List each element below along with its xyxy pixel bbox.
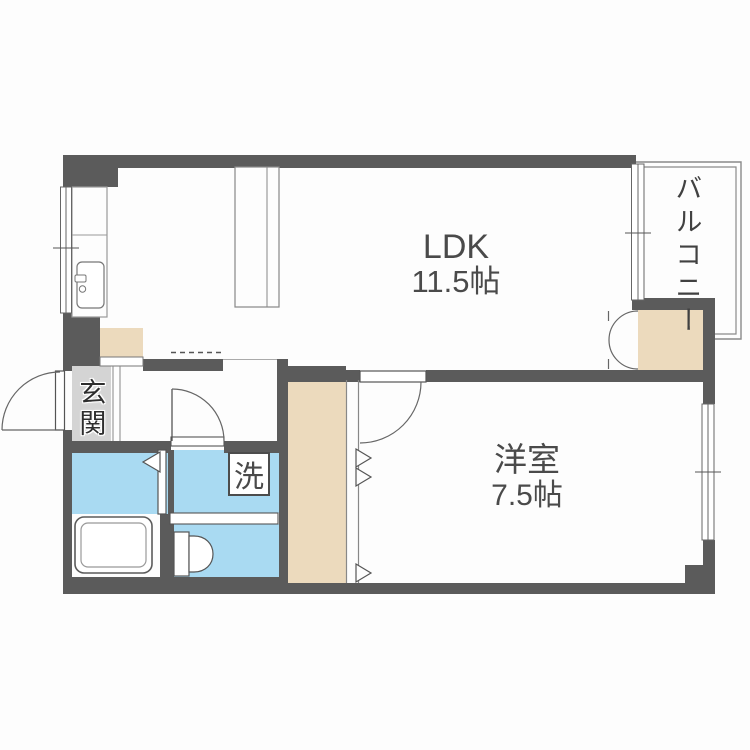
entrance-step: [113, 366, 120, 441]
washing-machine-label: 洗: [234, 452, 264, 496]
washing-machine-box: 洗: [228, 452, 270, 496]
ldk-closet-doors: [607, 310, 638, 370]
room-label-balcony: バルコニー: [672, 174, 700, 344]
shoe-cabinet-front: [100, 357, 143, 366]
washroom-door: [171, 389, 224, 446]
room-label-western-room: 洋室: [462, 443, 592, 478]
floor-plan: LDK 11.5帖 洋室 7.5帖 バルコニー 玄関 洗: [0, 0, 750, 750]
room-label-entrance: 玄関: [76, 378, 104, 444]
bath-folding-door: [143, 450, 166, 514]
room-size-western-room: 7.5帖: [462, 480, 592, 512]
toilet-door: [170, 513, 278, 524]
kitchen-counter: [72, 187, 107, 317]
bedroom-closet-doors: [347, 380, 372, 583]
balcony-window: [625, 164, 651, 300]
toilet: [174, 532, 213, 576]
overhead-opening: [171, 350, 223, 359]
room-label-ldk: LDK: [391, 230, 521, 266]
bedroom-door: [360, 371, 426, 443]
room-size-ldk: 11.5帖: [391, 266, 521, 299]
entrance-door: [2, 371, 65, 430]
kitchen-partition: [235, 167, 279, 307]
bedroom-window: [695, 404, 721, 540]
fixtures-layer: [0, 0, 750, 750]
bathtub: [75, 517, 152, 573]
